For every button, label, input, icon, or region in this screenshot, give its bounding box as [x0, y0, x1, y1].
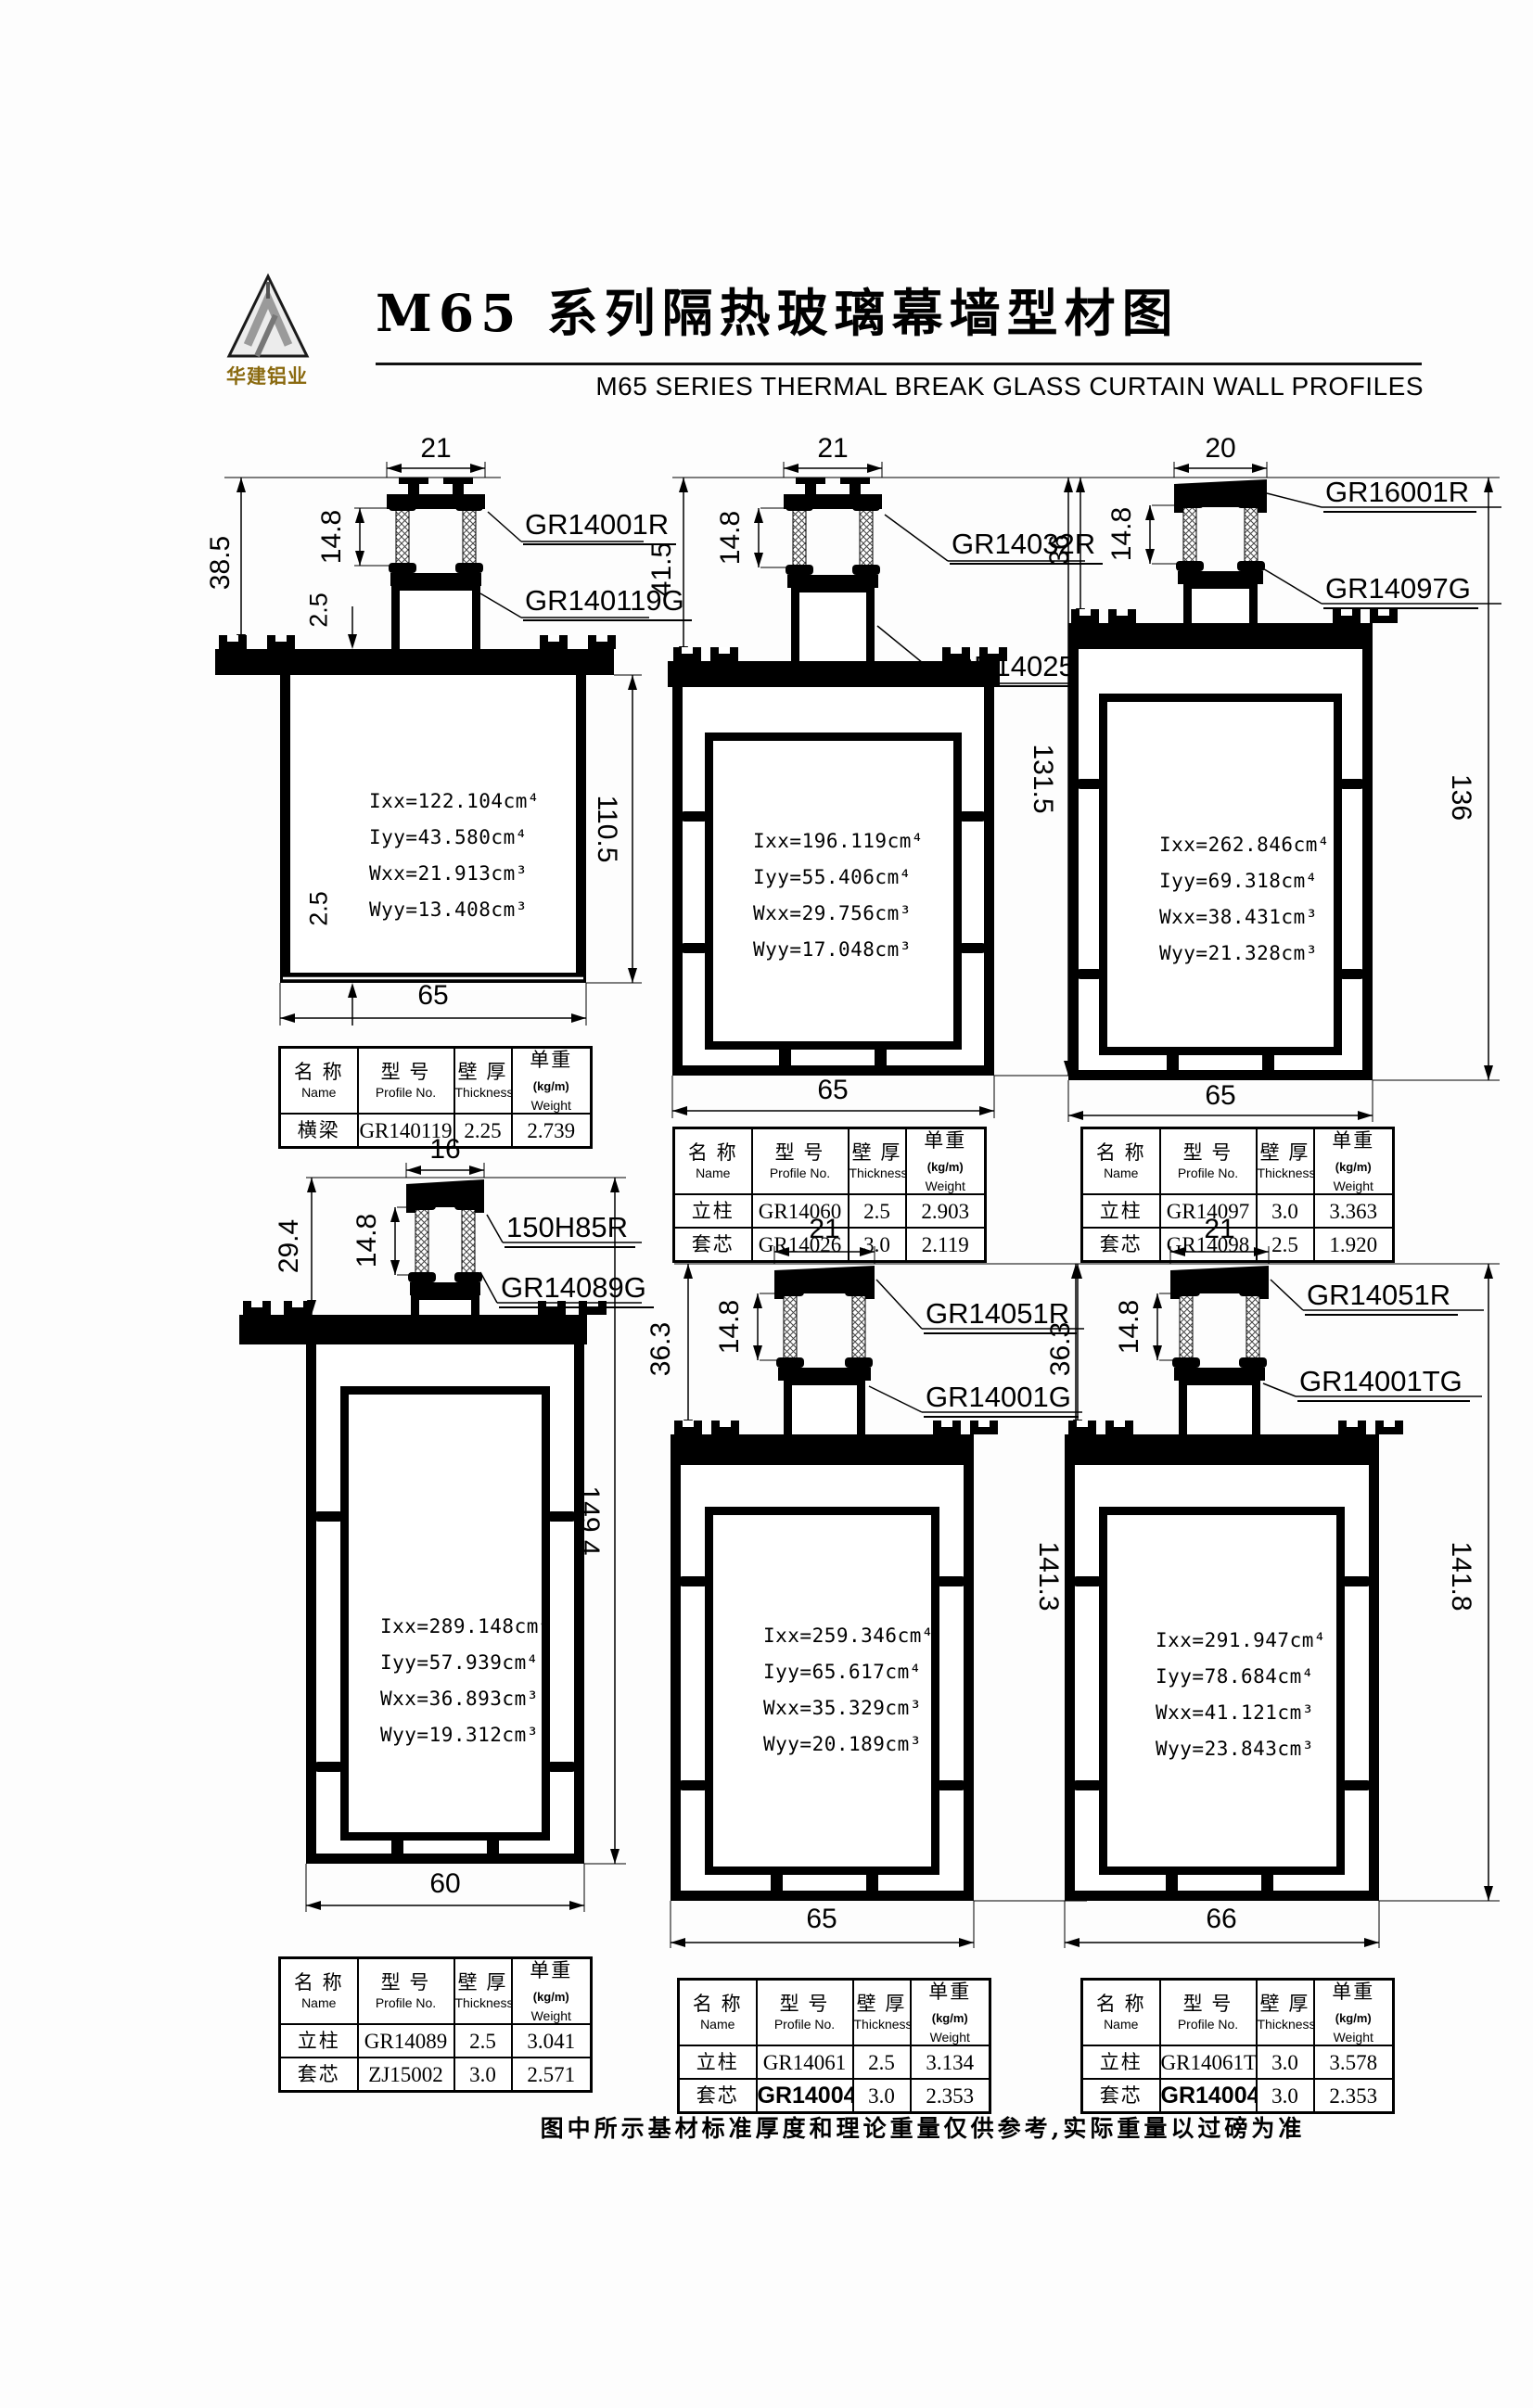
profile-panel-2: 21 41.5 14.8 131.5 65 GR14032R GR14025G …	[649, 427, 1096, 1256]
spec-table: 名 称Name 型 号Profile No. 壁 厚Thickness 单重(k…	[1080, 1978, 1395, 2114]
cell-model: GR14004	[1160, 2079, 1257, 2113]
cell-weight: 3.041	[512, 2024, 592, 2058]
section-properties: Ixx=291.947cm⁴ Iyy=78.684cm⁴ Wxx=41.121c…	[1156, 1623, 1326, 1766]
col-weight: 单重(kg/m)Weight	[911, 1980, 990, 2046]
col-thickness: 壁 厚Thickness	[853, 1980, 911, 2046]
col-weight: 单重(kg/m)Weight	[906, 1128, 986, 1195]
dim-bottom-width: 65	[806, 1904, 837, 1935]
prop-wyy: Wyy=23.843cm³	[1156, 1731, 1326, 1767]
prop-ixx: Ixx=122.104cm⁴	[369, 784, 540, 820]
part-label-body: GR14089G	[499, 1271, 654, 1308]
prop-wyy: Wyy=20.189cm³	[763, 1726, 934, 1763]
col-model: 型 号Profile No.	[358, 1958, 454, 2025]
prop-wyy: Wyy=19.312cm³	[380, 1717, 551, 1753]
dim-bottom-width: 65	[417, 980, 448, 1012]
table-row: 套芯 ZJ15002 3.0 2.571	[280, 2058, 592, 2092]
dim-thermal-break: 14.8	[1106, 507, 1138, 561]
dim-left-height: 38.5	[205, 536, 236, 590]
cell-weight: 3.578	[1314, 2045, 1394, 2079]
section-properties: Ixx=289.148cm⁴ Iyy=57.939cm⁴ Wxx=36.893c…	[380, 1609, 551, 1752]
table-row: 套芯 GR14004 3.0 2.353	[1082, 2079, 1394, 2113]
col-name: 名 称Name	[280, 1958, 358, 2025]
dim-bottom-width: 60	[429, 1868, 460, 1900]
prop-wxx: Wxx=21.913cm³	[369, 856, 540, 892]
prop-iyy: Iyy=55.406cm⁴	[753, 860, 924, 896]
dim-thermal-break: 14.8	[351, 1214, 383, 1268]
prop-iyy: Iyy=69.318cm⁴	[1159, 863, 1330, 899]
dim-top-width: 21	[1204, 1214, 1234, 1245]
dim-wall-bottom: 2.5	[305, 891, 334, 926]
cell-weight: 2.353	[1314, 2079, 1394, 2113]
section-properties: Ixx=262.846cm⁴ Iyy=69.318cm⁴ Wxx=38.431c…	[1159, 827, 1330, 971]
part-label-body: GR14097G	[1323, 572, 1478, 609]
col-thickness: 壁 厚Thickness	[1257, 1128, 1314, 1195]
dim-left-height: 41.5	[646, 542, 678, 596]
spec-table: 名 称Name 型 号Profile No. 壁 厚Thickness 单重(k…	[278, 1956, 593, 2093]
prop-wyy: Wyy=21.328cm³	[1159, 936, 1330, 972]
cell-name: 套芯	[679, 2079, 757, 2113]
cell-model: ZJ15002	[358, 2058, 454, 2092]
part-label-body: GR14001TG	[1297, 1365, 1470, 1402]
col-name: 名 称Name	[674, 1128, 752, 1195]
cell-weight: 2.353	[911, 2079, 990, 2113]
cell-name: 立柱	[679, 2045, 757, 2079]
cell-thickness: 3.0	[1257, 2045, 1314, 2079]
col-weight: 单重(kg/m)Weight	[1314, 1980, 1394, 2046]
cell-weight: 2.571	[512, 2058, 592, 2092]
cell-thickness: 3.0	[853, 2079, 911, 2113]
col-model: 型 号Profile No.	[358, 1048, 454, 1115]
profile-panel-5: 21 36.3 14.8 141.3 65 GR14051R GR14001G …	[654, 1205, 1101, 2096]
dim-top-width: 21	[809, 1214, 839, 1245]
prop-wxx: Wxx=29.756cm³	[753, 896, 924, 932]
dim-bottom-width: 66	[1206, 1904, 1236, 1935]
part-label-body: GR14001G	[924, 1381, 1079, 1418]
dim-top-width: 16	[429, 1134, 460, 1166]
dim-right-height: 149.4	[573, 1485, 605, 1555]
prop-iyy: Iyy=57.939cm⁴	[380, 1645, 551, 1681]
cell-name: 套芯	[1082, 2079, 1160, 2113]
cell-model: GR14089	[358, 2024, 454, 2058]
prop-ixx: Ixx=259.346cm⁴	[763, 1618, 934, 1654]
prop-wxx: Wxx=36.893cm³	[380, 1681, 551, 1717]
prop-ixx: Ixx=196.119cm⁴	[753, 823, 924, 860]
dim-left-height: 29.4	[274, 1219, 305, 1273]
prop-ixx: Ixx=262.846cm⁴	[1159, 827, 1330, 863]
col-thickness: 壁 厚Thickness	[454, 1048, 512, 1115]
prop-wxx: Wxx=41.121cm³	[1156, 1695, 1326, 1731]
col-weight: 单重(kg/m)Weight	[512, 1958, 592, 2025]
dim-top-width: 21	[420, 433, 451, 465]
page-title: M65 系列隔热玻璃幕墙型材图	[376, 272, 1180, 346]
table-row: 立柱 GR14061T 3.0 3.578	[1082, 2045, 1394, 2079]
col-thickness: 壁 厚Thickness	[1257, 1980, 1314, 2046]
prop-iyy: Iyy=43.580cm⁴	[369, 820, 540, 856]
dim-top-width: 21	[817, 433, 848, 465]
footer-note: 图中所示基材标准厚度和理论重量仅供参考,实际重量以过磅为准	[524, 2110, 1322, 2144]
cell-name: 立柱	[280, 2024, 358, 2058]
drawing-sheet: 华建铝业 M65 系列隔热玻璃幕墙型材图 M65 SERIES THERMAL …	[0, 0, 1533, 2408]
cell-model: GR14061T	[1160, 2045, 1257, 2079]
dim-bottom-width: 65	[817, 1075, 848, 1106]
prop-iyy: Iyy=65.617cm⁴	[763, 1654, 934, 1690]
prop-ixx: Ixx=289.148cm⁴	[380, 1609, 551, 1645]
dim-left-height: 36.3	[645, 1322, 677, 1376]
col-model: 型 号Profile No.	[752, 1128, 849, 1195]
dim-left-height: 36.3	[1045, 1322, 1077, 1376]
col-model: 型 号Profile No.	[1160, 1128, 1257, 1195]
company-logo	[220, 271, 317, 363]
cell-name: 套芯	[280, 2058, 358, 2092]
spec-table: 名 称Name 型 号Profile No. 壁 厚Thickness 单重(k…	[677, 1978, 991, 2114]
col-name: 名 称Name	[679, 1980, 757, 2046]
part-label-cap: GR16001R	[1323, 476, 1476, 513]
cell-thickness: 3.0	[1257, 2079, 1314, 2113]
table-row: 立柱 GR14061 2.5 3.134	[679, 2045, 990, 2079]
dim-right-height: 110.5	[591, 796, 622, 863]
cell-thickness: 3.0	[454, 2058, 512, 2092]
section-properties: Ixx=196.119cm⁴ Iyy=55.406cm⁴ Wxx=29.756c…	[753, 823, 924, 967]
logo-company-name: 华建铝业	[211, 362, 323, 389]
dim-thermal-break: 14.8	[316, 510, 348, 564]
profile-panel-1: 21 38.5 14.8 2.5 2.5 110.5 65 GR14001R G…	[213, 427, 670, 1150]
cell-weight: 3.134	[911, 2045, 990, 2079]
col-thickness: 壁 厚Thickness	[849, 1128, 906, 1195]
cell-thickness: 2.5	[454, 2024, 512, 2058]
col-model: 型 号Profile No.	[1160, 1980, 1257, 2046]
part-label-cap: GR14051R	[1305, 1279, 1458, 1316]
profile-panel-6: 21 36.3 14.8 141.8 66 GR14051R GR14001TG…	[1057, 1205, 1523, 2096]
profile-panel-4: 16 29.4 14.8 149.4 60 150H85R GR14089G I…	[213, 1122, 670, 2082]
page-subtitle-en: M65 SERIES THERMAL BREAK GLASS CURTAIN W…	[519, 372, 1424, 401]
dim-right-height: 141.8	[1445, 1541, 1476, 1611]
part-label-cap: 150H85R	[505, 1211, 635, 1248]
prop-wyy: Wyy=17.048cm³	[753, 932, 924, 968]
dim-thermal-break: 14.8	[714, 1300, 746, 1354]
table-row: 套芯 GR14004 3.0 2.353	[679, 2079, 990, 2113]
section-properties: Ixx=122.104cm⁴ Iyy=43.580cm⁴ Wxx=21.913c…	[369, 784, 540, 927]
col-name: 名 称Name	[280, 1048, 358, 1115]
dim-wall-top: 2.5	[305, 592, 334, 628]
prop-wxx: Wxx=38.431cm³	[1159, 899, 1330, 936]
dim-thermal-break: 14.8	[715, 511, 747, 565]
dim-bottom-width: 65	[1205, 1080, 1235, 1112]
cell-name: 立柱	[1082, 2045, 1160, 2079]
prop-iyy: Iyy=78.684cm⁴	[1156, 1659, 1326, 1695]
prop-wyy: Wyy=13.408cm³	[369, 892, 540, 928]
col-thickness: 壁 厚Thickness	[454, 1958, 512, 2025]
col-name: 名 称Name	[1082, 1128, 1160, 1195]
dim-top-width: 20	[1205, 433, 1235, 465]
dim-thermal-break: 14.8	[1114, 1300, 1145, 1354]
cell-thickness: 2.5	[853, 2045, 911, 2079]
section-properties: Ixx=259.346cm⁴ Iyy=65.617cm⁴ Wxx=35.329c…	[763, 1618, 934, 1762]
col-model: 型 号Profile No.	[757, 1980, 853, 2046]
col-weight: 单重(kg/m)Weight	[1314, 1128, 1394, 1195]
prop-wxx: Wxx=35.329cm³	[763, 1690, 934, 1726]
cell-model: GR14061	[757, 2045, 853, 2079]
col-weight: 单重(kg/m)Weight	[512, 1048, 592, 1115]
title-divider	[376, 363, 1422, 365]
logo-triangle-icon	[220, 271, 317, 363]
profile-panel-3: 20 36 14.8 136 65 GR16001R GR14097G Ixx=…	[1053, 427, 1518, 1256]
cell-model: GR14004	[757, 2079, 853, 2113]
dim-left-height: 36	[1044, 534, 1076, 565]
table-row: 立柱 GR14089 2.5 3.041	[280, 2024, 592, 2058]
dim-right-height: 136	[1445, 774, 1476, 821]
col-name: 名 称Name	[1082, 1980, 1160, 2046]
prop-ixx: Ixx=291.947cm⁴	[1156, 1623, 1326, 1659]
